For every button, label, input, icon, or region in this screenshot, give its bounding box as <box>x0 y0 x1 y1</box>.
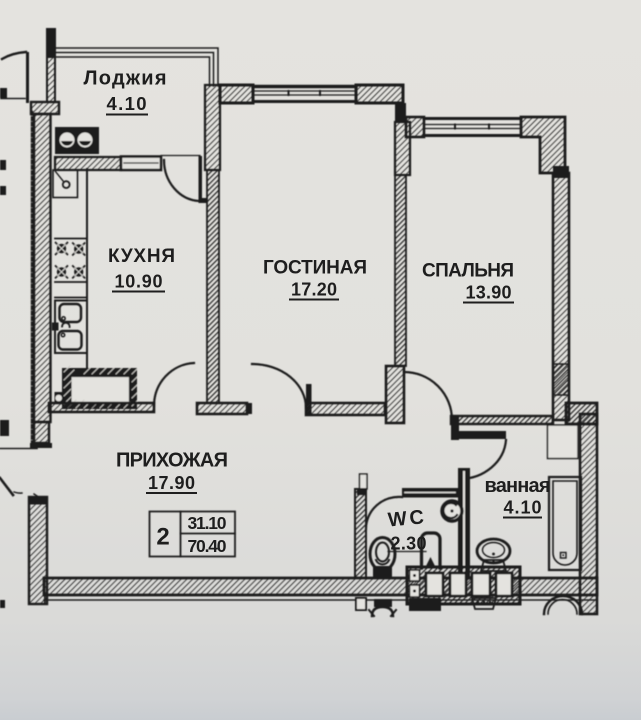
svg-text:WC: WC <box>387 506 425 531</box>
svg-text:ванная: ванная <box>485 475 551 497</box>
svg-text:70.40: 70.40 <box>188 536 227 556</box>
svg-text:2.30: 2.30 <box>391 534 427 554</box>
svg-text:ПРИХОЖАЯ: ПРИХОЖАЯ <box>116 450 228 472</box>
svg-text:10.90: 10.90 <box>115 272 163 292</box>
svg-text:17.20: 17.20 <box>291 280 337 300</box>
svg-text:31.10: 31.10 <box>188 513 227 533</box>
svg-text:13.90: 13.90 <box>466 283 512 303</box>
svg-text:Лоджия: Лоджия <box>84 68 167 90</box>
svg-text:КУХНЯ: КУХНЯ <box>108 246 175 267</box>
svg-text:2: 2 <box>156 524 169 551</box>
svg-text:4.10: 4.10 <box>107 93 147 114</box>
svg-text:ГОСТИНАЯ: ГОСТИНАЯ <box>263 258 367 279</box>
svg-text:4.10: 4.10 <box>504 498 542 518</box>
svg-text:17.90: 17.90 <box>148 473 195 493</box>
svg-text:СПАЛЬНЯ: СПАЛЬНЯ <box>422 261 514 282</box>
